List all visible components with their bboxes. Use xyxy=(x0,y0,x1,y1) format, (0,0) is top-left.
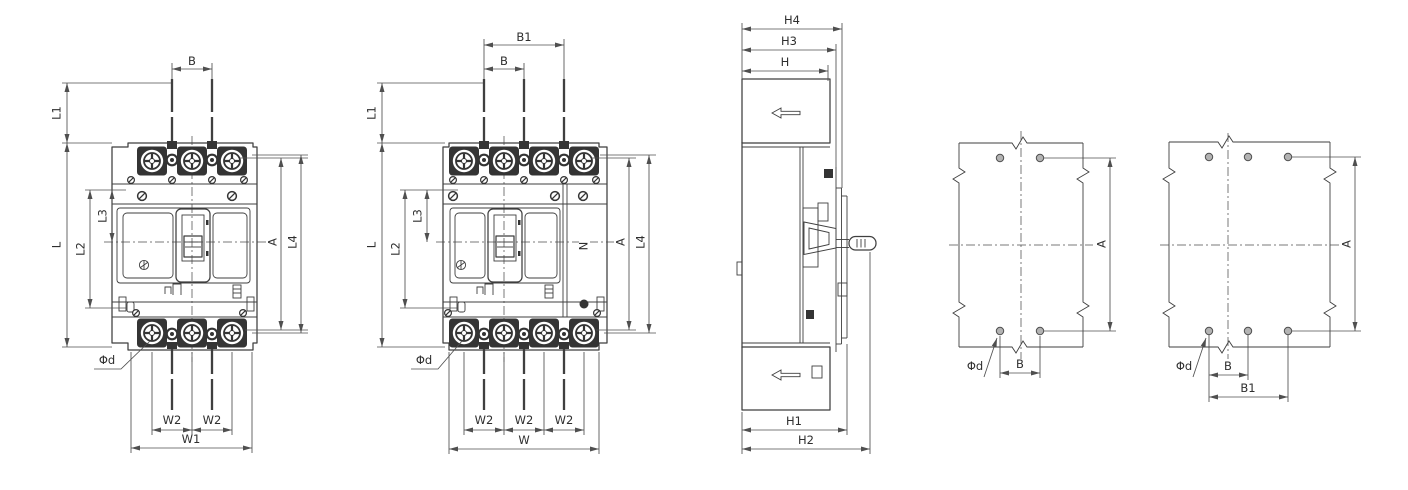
switch-handle xyxy=(849,237,876,251)
dim-h2: H2 xyxy=(798,433,814,447)
mounting-hole xyxy=(1244,153,1251,160)
dim-w1-3p: W1 xyxy=(182,432,201,446)
terminal-screw xyxy=(177,147,207,176)
dim-w2b-3p: W2 xyxy=(203,413,222,427)
toggle-handle xyxy=(176,209,210,282)
face-cover xyxy=(450,208,560,283)
dim-h4: H4 xyxy=(784,13,800,27)
dim-l3-4p: L3 xyxy=(411,209,425,223)
clamp-screw xyxy=(166,154,179,167)
terminal-screw xyxy=(449,147,479,176)
dimensions-3pole: B L1 L L2 L3 A L4 Φd W2 W2 W1 xyxy=(50,54,309,453)
terminal-screw xyxy=(137,319,167,348)
accessory-tab xyxy=(165,284,181,295)
mounting-hole xyxy=(1284,153,1291,160)
vent-tab xyxy=(545,285,553,298)
toggle-side-profile xyxy=(803,203,876,267)
terminal-screw xyxy=(217,147,247,176)
dim-h3: H3 xyxy=(781,34,797,48)
side-view: H4 H3 H H1 H2 xyxy=(737,13,876,454)
dim-l3-3p: L3 xyxy=(96,209,110,223)
top-terminal-wires xyxy=(481,79,567,146)
mounting-hole xyxy=(996,327,1003,334)
dim-w2a-4p: W2 xyxy=(475,413,494,427)
dim-b-3p: B xyxy=(188,54,196,68)
dim-l-4p: L xyxy=(365,241,379,248)
vent-tab xyxy=(233,285,241,298)
dim-a-pattern3: A xyxy=(1095,240,1109,248)
dim-l2-4p: L2 xyxy=(389,242,403,256)
mounting-hole xyxy=(1205,327,1212,334)
terminal-screw xyxy=(529,319,559,348)
mccb-outline-drawing: B L1 L L2 L3 A L4 Φd W2 W2 W1 xyxy=(0,0,1408,490)
dim-b-4p: B xyxy=(500,54,508,68)
cover-screw xyxy=(138,192,147,201)
left-arrow-icon xyxy=(772,370,800,380)
dimensions-pattern-3pole: A B Φd xyxy=(967,158,1116,378)
mounting-hole xyxy=(996,154,1003,161)
dim-b1-pattern4: B1 xyxy=(1240,381,1255,395)
dim-w-4p: W xyxy=(518,433,529,447)
trip-button xyxy=(456,260,465,269)
mounting-pattern-3pole: A B Φd xyxy=(949,131,1116,378)
terminal-screw xyxy=(489,319,519,348)
clamp-screw xyxy=(206,328,219,341)
mounting-hole xyxy=(1036,327,1043,334)
mounting-hole xyxy=(1284,327,1291,334)
accessory-tab xyxy=(477,284,493,295)
mounting-panel xyxy=(824,167,847,352)
dim-b-pattern4: B xyxy=(1224,359,1232,373)
dim-l2-3p: L2 xyxy=(74,242,88,256)
dim-w2c-4p: W2 xyxy=(555,413,574,427)
dim-a-pattern4: A xyxy=(1340,240,1354,248)
dim-l4-4p: L4 xyxy=(634,235,648,249)
clamp-screw xyxy=(206,154,219,167)
bottom-terminal-cover xyxy=(742,347,830,410)
toggle-handle xyxy=(488,209,522,282)
dim-phid-4p: Φd xyxy=(416,353,432,367)
dim-h: H xyxy=(781,55,790,69)
dim-b-pattern3: B xyxy=(1016,357,1024,371)
dim-a-4p: A xyxy=(614,238,628,246)
dim-phid-pattern3: Φd xyxy=(967,359,983,373)
cover-screw xyxy=(228,192,237,201)
mounting-hole xyxy=(1244,327,1251,334)
dim-l-3p: L xyxy=(50,241,64,248)
terminal-screw xyxy=(449,319,479,348)
front-view-3pole: B L1 L L2 L3 A L4 Φd W2 W2 W1 xyxy=(50,54,309,453)
terminal-screw xyxy=(569,147,599,176)
panel-outline xyxy=(1163,136,1336,353)
dim-w2a-3p: W2 xyxy=(163,413,182,427)
mounting-hole xyxy=(1036,154,1043,161)
neutral-pole-label: N xyxy=(577,242,591,251)
dim-l1-4p: L1 xyxy=(365,106,379,120)
terminal-screw xyxy=(137,147,167,176)
trip-button xyxy=(139,260,148,269)
dim-b1-4p: B1 xyxy=(516,30,531,44)
dim-l4-3p: L4 xyxy=(286,235,300,249)
terminal-screw xyxy=(489,147,519,176)
dim-l1-3p: L1 xyxy=(50,106,64,120)
terminal-screw xyxy=(529,147,559,176)
top-terminal-wires xyxy=(169,79,215,146)
dim-w2b-4p: W2 xyxy=(515,413,534,427)
indicator-dot xyxy=(580,300,589,309)
dimension-drawing-sheet: B L1 L L2 L3 A L4 Φd W2 W2 W1 xyxy=(0,0,1408,490)
dim-phid-pattern4: Φd xyxy=(1176,359,1192,373)
mounting-pattern-4pole: A B B1 Φd xyxy=(1160,133,1361,402)
dim-h1: H1 xyxy=(786,414,802,428)
terminal-screw xyxy=(217,319,247,348)
dim-phid-3p: Φd xyxy=(99,353,115,367)
left-arrow-icon xyxy=(772,108,800,118)
front-view-4pole: N B1 B L1 L L2 L3 A L4 Φd W2 W2 W2 xyxy=(365,30,657,454)
mounting-hole xyxy=(1205,153,1212,160)
clamp-screw xyxy=(166,328,179,341)
terminal-screw xyxy=(569,319,599,348)
terminal-screw xyxy=(177,319,207,348)
bottom-terminal-wires xyxy=(481,349,567,410)
dimensions-pattern-4pole: A B B1 Φd xyxy=(1176,157,1361,402)
dim-a-3p: A xyxy=(266,238,280,246)
